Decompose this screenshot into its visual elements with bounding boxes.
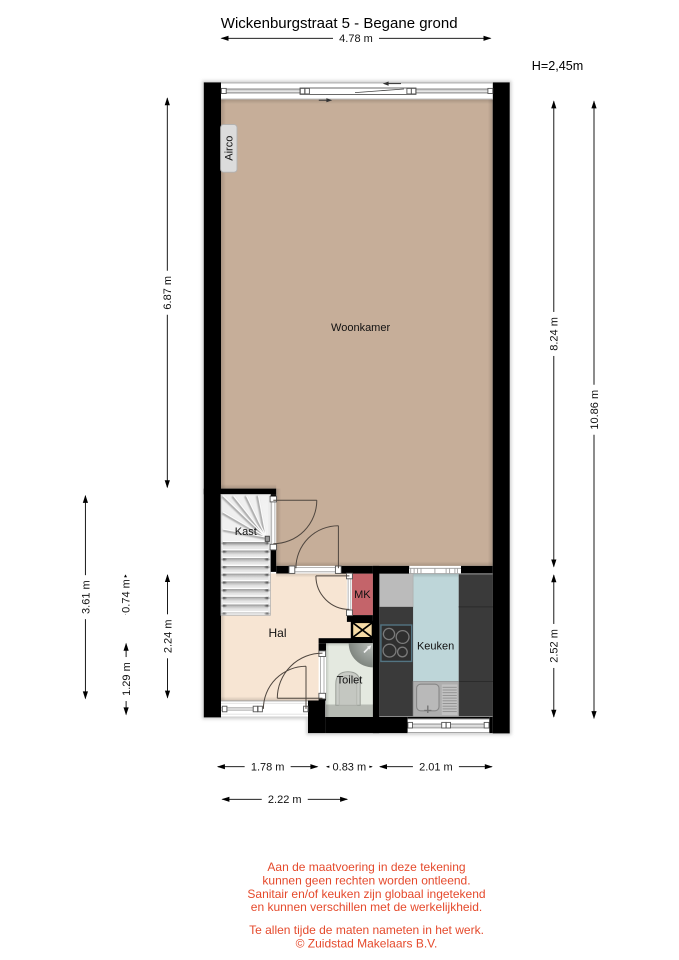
svg-text:Hal: Hal: [268, 626, 286, 640]
svg-text:Toilet: Toilet: [337, 675, 363, 687]
svg-text:10.86 m: 10.86 m: [589, 390, 601, 430]
svg-text:8.24 m: 8.24 m: [549, 317, 561, 351]
svg-text:Woonkamer: Woonkamer: [331, 322, 390, 334]
svg-text:H=2,45m: H=2,45m: [532, 59, 583, 73]
svg-text:Keuken: Keuken: [417, 641, 454, 653]
svg-text:1.29 m: 1.29 m: [121, 662, 133, 696]
svg-text:Wickenburgstraat 5 - Begane gr: Wickenburgstraat 5 - Begane grond: [221, 15, 458, 32]
svg-text:6.87 m: 6.87 m: [162, 276, 174, 310]
svg-text:Aan de maatvoering in deze tek: Aan de maatvoering in deze tekening: [267, 860, 465, 874]
svg-text:3.61 m: 3.61 m: [80, 580, 92, 614]
svg-text:1.78 m: 1.78 m: [251, 762, 285, 774]
svg-text:Sanitair en/of keuken zijn glo: Sanitair en/of keuken zijn globaal inget…: [247, 887, 485, 901]
svg-text:0.74 m: 0.74 m: [120, 579, 132, 613]
svg-text:en kunnen verschillen met de w: en kunnen verschillen met de werkelijkhe…: [251, 900, 482, 914]
svg-text:MK: MK: [354, 589, 371, 601]
svg-text:kunnen geen rechten worden ont: kunnen geen rechten worden ontleend.: [262, 873, 470, 887]
svg-text:Te allen tijde de maten namete: Te allen tijde de maten nameten in het w…: [249, 923, 484, 937]
svg-text:2.22 m: 2.22 m: [268, 794, 302, 806]
svg-text:2.24 m: 2.24 m: [162, 619, 174, 653]
svg-text:2.52 m: 2.52 m: [549, 629, 561, 663]
svg-text:4.78 m: 4.78 m: [339, 33, 373, 45]
svg-text:2.01 m: 2.01 m: [419, 762, 453, 774]
svg-text:© Zuidstad Makelaars B.V.: © Zuidstad Makelaars B.V.: [296, 937, 438, 951]
svg-text:0.83 m: 0.83 m: [333, 762, 367, 774]
svg-text:Kast: Kast: [235, 526, 257, 538]
svg-text:Airco: Airco: [224, 136, 236, 161]
